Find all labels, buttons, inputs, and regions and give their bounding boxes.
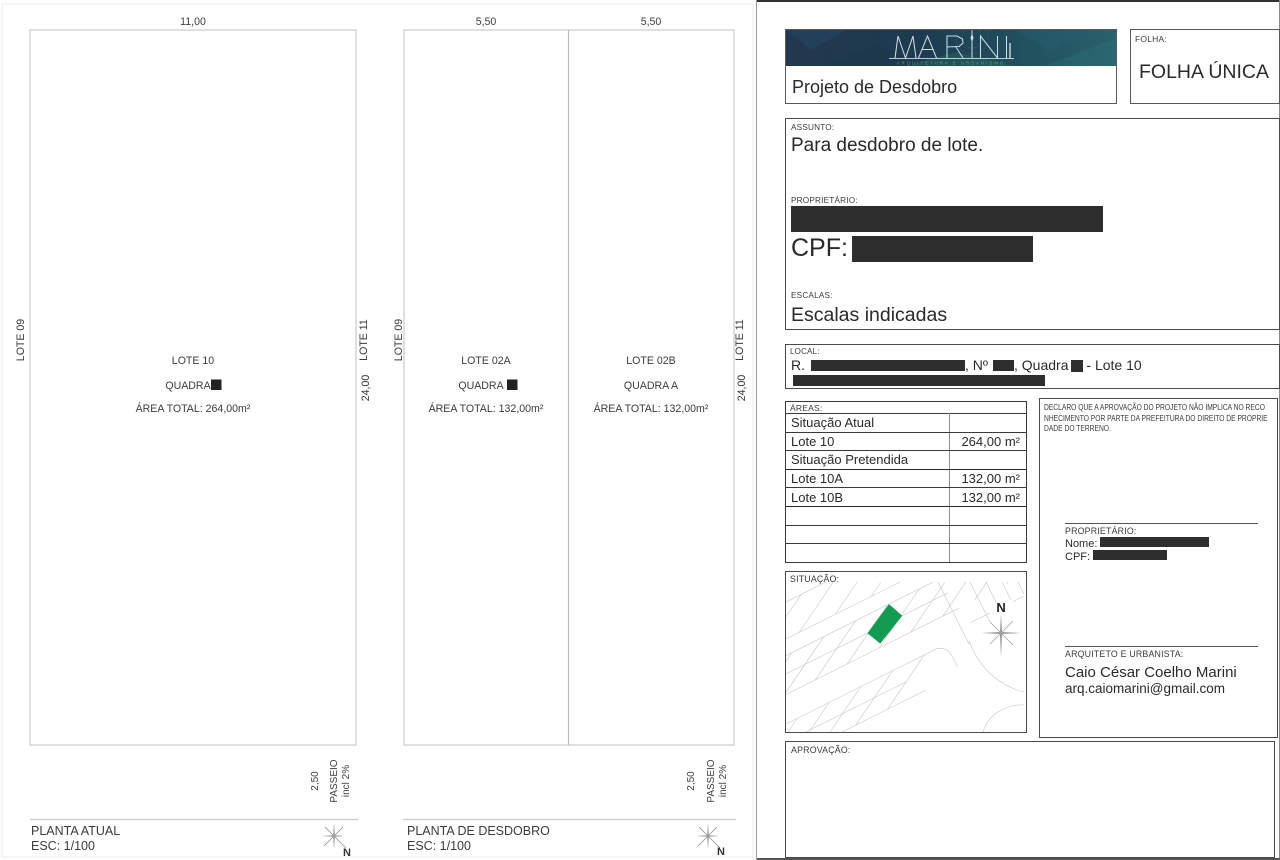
svg-text:incl 2%: incl 2% xyxy=(718,765,729,797)
svg-text:2,50: 2,50 xyxy=(310,771,321,791)
svg-text:ESC: 1/100: ESC: 1/100 xyxy=(407,839,471,853)
svg-text:PLANTA DE DESDOBRO: PLANTA DE DESDOBRO xyxy=(407,824,550,838)
svg-text:ESC: 1/100: ESC: 1/100 xyxy=(31,839,95,853)
svg-text:24,00: 24,00 xyxy=(736,375,748,402)
svg-text:PLANTA ATUAL: PLANTA ATUAL xyxy=(31,824,120,838)
svg-text:2,50: 2,50 xyxy=(686,771,697,791)
svg-text:11,00: 11,00 xyxy=(180,16,206,28)
svg-text:QUADRA: QUADRA xyxy=(165,380,211,392)
svg-text:PASSEIO: PASSEIO xyxy=(706,759,717,802)
svg-text:ARQUITETURA E URBANISMO: ARQUITETURA E URBANISMO xyxy=(897,60,1006,65)
svg-text:LOTE 11: LOTE 11 xyxy=(734,319,746,361)
svg-text:LOTE 10: LOTE 10 xyxy=(172,355,215,367)
svg-text:N: N xyxy=(343,847,351,859)
svg-text:LOTE 02A: LOTE 02A xyxy=(461,355,511,367)
svg-text:LOTE 09: LOTE 09 xyxy=(15,319,27,362)
svg-text:LOTE 02B: LOTE 02B xyxy=(626,355,675,367)
svg-text:QUADRA A: QUADRA A xyxy=(624,380,679,392)
svg-text:ÁREA TOTAL: 132,00m²: ÁREA TOTAL: 132,00m² xyxy=(594,402,709,415)
svg-text:ÁREA TOTAL: 264,00m²: ÁREA TOTAL: 264,00m² xyxy=(136,402,251,415)
svg-text:PASSEIO: PASSEIO xyxy=(329,759,340,802)
svg-text:5,50: 5,50 xyxy=(641,16,662,28)
svg-text:QUADRA: QUADRA xyxy=(458,380,504,392)
svg-text:N: N xyxy=(717,846,725,858)
svg-text:incl 2%: incl 2% xyxy=(341,765,352,797)
svg-text:ÁREA TOTAL: 132,00m²: ÁREA TOTAL: 132,00m² xyxy=(429,402,544,415)
svg-text:LOTE 11: LOTE 11 xyxy=(358,319,370,361)
svg-text:LOTE 09: LOTE 09 xyxy=(393,319,405,362)
svg-text:5,50: 5,50 xyxy=(476,16,497,28)
svg-text:24,00: 24,00 xyxy=(360,375,372,402)
svg-text:N: N xyxy=(996,600,1005,615)
